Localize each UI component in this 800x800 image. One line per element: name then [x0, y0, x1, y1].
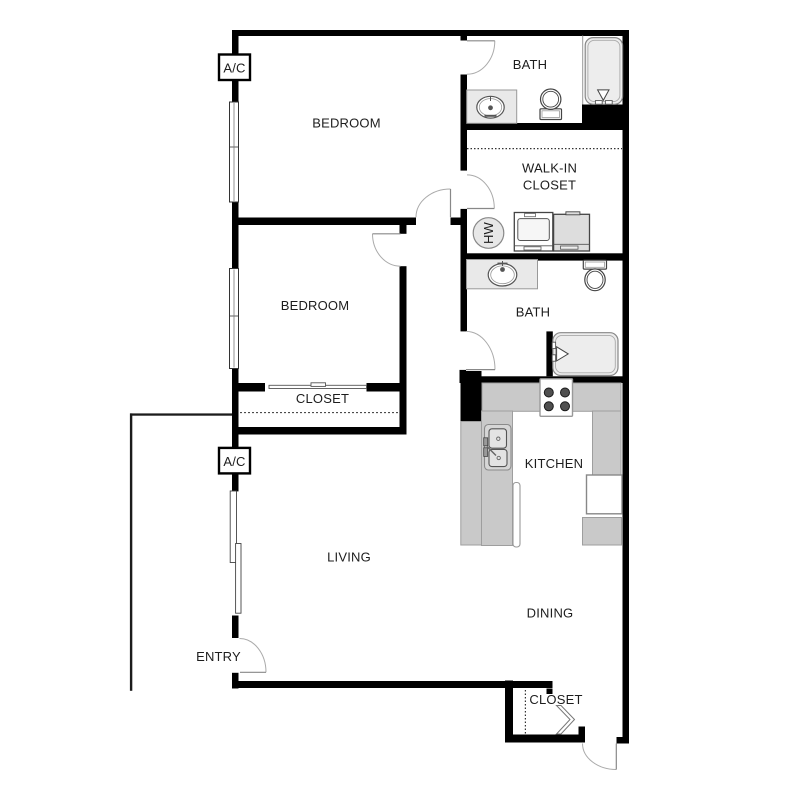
svg-text:CLOSET: CLOSET	[523, 178, 576, 193]
svg-text:WALK-IN: WALK-IN	[522, 161, 577, 176]
svg-text:CLOSET: CLOSET	[296, 391, 349, 406]
svg-text:DINING: DINING	[527, 606, 574, 621]
svg-text:A/C: A/C	[223, 454, 245, 469]
svg-text:BATH: BATH	[513, 57, 548, 72]
svg-text:LIVING: LIVING	[327, 550, 371, 565]
svg-text:BEDROOM: BEDROOM	[281, 298, 350, 313]
svg-text:CLOSET: CLOSET	[529, 692, 582, 707]
svg-text:ENTRY: ENTRY	[196, 649, 241, 664]
svg-text:BATH: BATH	[516, 305, 551, 320]
svg-text:BEDROOM: BEDROOM	[312, 116, 381, 131]
svg-text:HW: HW	[481, 221, 496, 244]
svg-text:KITCHEN: KITCHEN	[525, 456, 583, 471]
svg-text:A/C: A/C	[223, 61, 245, 76]
